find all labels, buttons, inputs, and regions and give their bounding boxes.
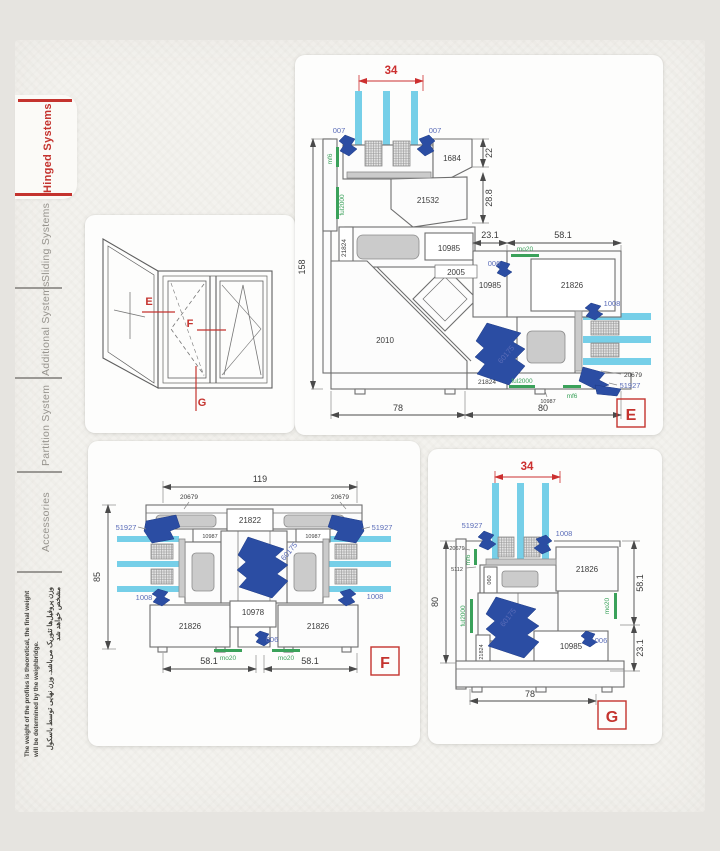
profile-chamber xyxy=(294,553,316,591)
profile-chamber xyxy=(357,235,419,259)
section-cut-lines xyxy=(142,312,226,411)
part-2005: 2005 xyxy=(447,268,465,277)
part-51927-left: 51927 xyxy=(116,523,137,532)
part-21826-right: 21826 xyxy=(307,622,330,631)
part-51927: 51927 xyxy=(462,521,483,530)
dim-28-8: 28.8 xyxy=(484,189,494,207)
gasket-label-ful2000: ful2000 xyxy=(460,605,467,627)
dim-158: 158 xyxy=(297,259,307,274)
section-letter: G xyxy=(598,701,626,729)
section-f-panel: 119 85 58.1 58.1 20679 20679 5 xyxy=(88,441,420,746)
gasket-label-mf6-b: mf6 xyxy=(567,393,578,400)
part-51927: 51927 xyxy=(620,381,641,390)
gasket-label-mo20: mo20 xyxy=(517,246,534,253)
part-10985-b: 10985 xyxy=(479,281,502,290)
tab-divider xyxy=(15,287,62,289)
gasket-label-mo20: mo20 xyxy=(604,597,611,614)
sidebar-tab-accessories[interactable]: Accessories xyxy=(40,475,62,570)
window-elevation-drawing: E F G xyxy=(85,215,295,433)
section-letter-g: G xyxy=(606,709,618,726)
sidebar-tab-hinged-systems[interactable]: Hinged Systems xyxy=(42,103,64,193)
part-10985: 10985 xyxy=(438,244,461,253)
part-20679-right: 20679 xyxy=(331,494,349,501)
dim-22: 22 xyxy=(484,148,494,158)
sidebar-tab-additional-systems[interactable]: Additional Systems xyxy=(40,291,62,376)
dim-85: 85 xyxy=(92,572,102,582)
label-006: 006 xyxy=(266,635,279,644)
glazing-plate xyxy=(575,311,582,371)
gasket-label-mo20-right: mo20 xyxy=(278,655,295,662)
section-marker-g: G xyxy=(198,397,207,409)
label-1008: 1008 xyxy=(604,299,621,308)
part-21824: 21824 xyxy=(479,644,485,659)
part-21824-bottom: 21824 xyxy=(478,379,496,386)
dim-78: 78 xyxy=(393,403,403,413)
tab-divider xyxy=(15,193,72,196)
section-letter-f: F xyxy=(380,655,390,672)
part-21822: 21822 xyxy=(239,516,262,525)
dim-34: 34 xyxy=(385,65,398,77)
part-10985: 10985 xyxy=(560,642,583,651)
section-e-drawing: 34 158 22 28.8 23.1 58 xyxy=(295,55,663,435)
label-006: 006 xyxy=(488,259,501,268)
profile-chamber xyxy=(502,571,538,587)
tab-divider xyxy=(17,571,62,573)
profile-chamber xyxy=(527,331,565,363)
catalog-page: Hinged Systems Sliding Systems Additiona… xyxy=(0,0,720,851)
gasket-label-ful2000: ful2000 xyxy=(339,194,346,216)
dimension-glass-width: 34 xyxy=(495,461,560,483)
gasket-label-mf6: mf6 xyxy=(327,153,334,164)
label-007-left: 007 xyxy=(333,126,346,135)
tab-divider xyxy=(18,99,72,102)
part-1008-left: 1008 xyxy=(136,593,153,602)
section-g-panel: 34 80 58.1 23.1 78 51927 xyxy=(428,449,662,744)
dim-78: 78 xyxy=(525,689,535,699)
dim-58-1: 58.1 xyxy=(635,574,645,592)
dim-23-1: 23.1 xyxy=(635,639,645,657)
part-20679: 20679 xyxy=(449,546,464,552)
part-21826-left: 21826 xyxy=(179,622,202,631)
part-21826: 21826 xyxy=(561,281,584,290)
gaskets-green xyxy=(214,649,300,652)
section-g-drawing: 34 80 58.1 23.1 78 51927 xyxy=(428,449,662,744)
section-marker-f: F xyxy=(187,318,194,330)
dim-34: 34 xyxy=(521,461,534,473)
part-20679-left: 20679 xyxy=(180,494,198,501)
tab-divider xyxy=(17,471,62,473)
part-060: 060 xyxy=(487,575,493,584)
sidebar-tab-sliding-systems[interactable]: Sliding Systems xyxy=(40,199,62,286)
part-51927-right: 51927 xyxy=(372,523,393,532)
profile-chamber xyxy=(192,553,214,591)
part-10987: 10987 xyxy=(540,399,555,405)
dim-119: 119 xyxy=(253,474,267,484)
section-e-panel: 34 158 22 28.8 23.1 58 xyxy=(295,55,663,435)
gasket-label-ful2000-b: ful2000 xyxy=(511,378,533,385)
dimension-glass-width: 34 xyxy=(359,65,423,91)
part-1684: 1684 xyxy=(443,154,461,163)
part-2010: 2010 xyxy=(376,336,394,345)
part-20679: 20679 xyxy=(624,372,642,379)
footnote-english: The weight of the profiles is theoretica… xyxy=(23,587,42,757)
dim-23-1: 23.1 xyxy=(481,230,499,240)
section-f-drawing: 119 85 58.1 58.1 20679 20679 5 xyxy=(88,441,420,746)
part-10978: 10978 xyxy=(242,608,265,617)
elevation-panel: E F G xyxy=(85,215,295,433)
dim-58-1-right: 58.1 xyxy=(301,656,319,666)
gasket-label-mf6: mf6 xyxy=(465,554,472,565)
part-10987-left: 10987 xyxy=(202,534,217,540)
sidebar-tab-partition-system[interactable]: Partition System xyxy=(40,381,62,470)
part-1008-right: 1008 xyxy=(367,592,384,601)
section-marker-e: E xyxy=(145,296,152,308)
section-letter-e: E xyxy=(626,407,637,424)
part-21824-left: 21824 xyxy=(341,239,348,257)
footnote-persian: وزن پروفیل‌ها تئوریک می‌باشد. وزن نهایی … xyxy=(46,587,62,757)
tab-divider xyxy=(15,377,62,379)
dim-80: 80 xyxy=(430,597,440,607)
gasket-label-mo20-left: mo20 xyxy=(220,655,237,662)
part-1008: 1008 xyxy=(556,529,573,538)
label-006: 006 xyxy=(595,636,608,645)
dim-58-1: 58.1 xyxy=(554,230,572,240)
dim-58-1-left: 58.1 xyxy=(200,656,218,666)
part-10987-right: 10987 xyxy=(305,534,320,540)
clip-1008-right xyxy=(338,589,356,606)
part-21826: 21826 xyxy=(576,565,599,574)
part-5112: 5112 xyxy=(451,567,463,573)
label-007-right: 007 xyxy=(429,126,442,135)
part-21532: 21532 xyxy=(417,196,440,205)
section-letter: F xyxy=(371,647,399,675)
clip-1008-left xyxy=(152,589,170,606)
